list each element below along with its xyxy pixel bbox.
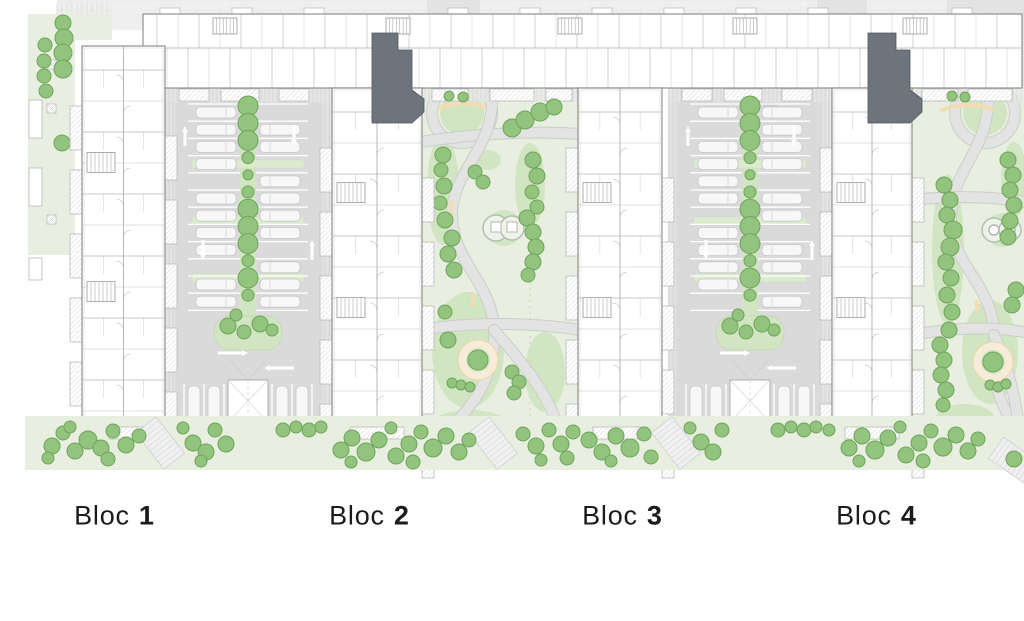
bloc-3-label: Bloc3: [582, 501, 662, 532]
bloc-1-building: [70, 46, 177, 439]
bloc-2-name: Bloc: [329, 501, 385, 531]
bottom-green-strip: [25, 416, 1024, 485]
bloc-4-number: 4: [901, 501, 916, 531]
bloc-4-label: Bloc4: [836, 501, 916, 532]
bloc-4-name: Bloc: [836, 501, 892, 531]
bloc-3-name: Bloc: [582, 501, 638, 531]
bloc-2-number: 2: [394, 501, 409, 531]
bloc-1-label: Bloc1: [74, 501, 154, 532]
bloc-1-name: Bloc: [74, 501, 130, 531]
bloc-3-number: 3: [647, 501, 662, 531]
parking-lot-1: [165, 88, 338, 464]
bloc-2-label: Bloc2: [329, 501, 409, 532]
bloc-1-number: 1: [139, 501, 154, 531]
sand-ring: [458, 340, 498, 380]
central-park-1: [420, 83, 580, 570]
central-park-2: [912, 83, 1024, 436]
sand-ring: [973, 342, 1013, 382]
parking-lot-2: [668, 88, 835, 466]
site-plan: Bloc1 Bloc2 Bloc3 Bloc4: [0, 0, 1024, 621]
